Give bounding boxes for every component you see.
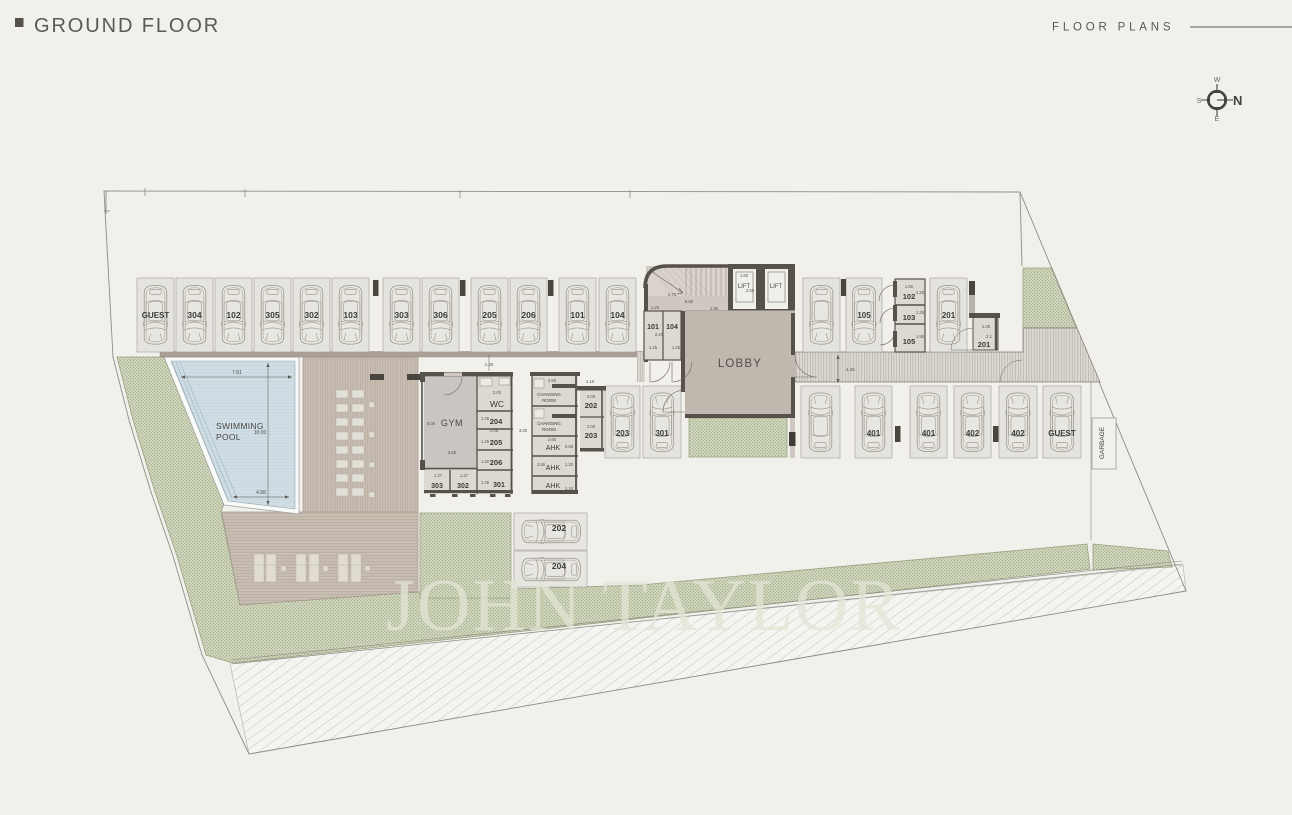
svg-text:LOBBY: LOBBY bbox=[718, 358, 762, 370]
svg-text:203: 203 bbox=[616, 429, 630, 438]
svg-text:AHK: AHK bbox=[546, 465, 561, 472]
svg-text:S: S bbox=[1197, 98, 1202, 105]
svg-text:1.25: 1.25 bbox=[481, 416, 490, 421]
svg-text:1.25: 1.25 bbox=[672, 345, 681, 350]
svg-text:CHANGING: CHANGING bbox=[537, 392, 561, 397]
svg-text:3.30: 3.30 bbox=[519, 428, 528, 433]
svg-text:1.20: 1.20 bbox=[651, 305, 660, 310]
svg-text:103: 103 bbox=[903, 313, 916, 322]
svg-text:AHK: AHK bbox=[546, 483, 561, 490]
svg-text:1.27: 1.27 bbox=[434, 473, 443, 478]
svg-text:LIFT: LIFT bbox=[770, 284, 783, 290]
svg-text:1.25: 1.25 bbox=[649, 345, 658, 350]
svg-text:204: 204 bbox=[490, 417, 503, 426]
svg-text:1.10: 1.10 bbox=[586, 379, 595, 384]
svg-text:302: 302 bbox=[304, 310, 318, 320]
svg-text:401: 401 bbox=[867, 429, 881, 438]
svg-text:GROUND FLOOR: GROUND FLOOR bbox=[34, 15, 220, 37]
svg-text:2.50: 2.50 bbox=[746, 288, 755, 293]
svg-text:1.10: 1.10 bbox=[565, 486, 574, 491]
svg-text:2.70: 2.70 bbox=[668, 292, 677, 297]
svg-text:ROOM: ROOM bbox=[542, 398, 556, 403]
svg-text:JOHN TAYLOR: JOHN TAYLOR bbox=[386, 565, 902, 647]
svg-text:3.55: 3.55 bbox=[537, 462, 546, 467]
svg-text:SWIMMING: SWIMMING bbox=[216, 421, 264, 431]
svg-text:402: 402 bbox=[1011, 429, 1025, 438]
svg-text:1.25: 1.25 bbox=[916, 290, 925, 295]
svg-text:2.60: 2.60 bbox=[548, 437, 557, 442]
svg-text:GYM: GYM bbox=[441, 418, 463, 428]
svg-text:206: 206 bbox=[490, 458, 503, 467]
svg-text:1.20: 1.20 bbox=[481, 459, 490, 464]
svg-text:1.25: 1.25 bbox=[481, 439, 490, 444]
svg-text:7.81: 7.81 bbox=[232, 370, 242, 376]
svg-text:1.25: 1.25 bbox=[485, 362, 494, 367]
svg-text:2.00: 2.00 bbox=[493, 390, 502, 395]
svg-text:POOL: POOL bbox=[216, 432, 241, 442]
svg-text:104: 104 bbox=[666, 324, 678, 331]
svg-text:103: 103 bbox=[343, 310, 357, 320]
svg-text:1.25: 1.25 bbox=[481, 480, 490, 485]
svg-text:202: 202 bbox=[585, 401, 598, 410]
svg-text:GARBAGE: GARBAGE bbox=[1099, 426, 1106, 459]
svg-text:301: 301 bbox=[493, 482, 505, 489]
svg-text:101: 101 bbox=[570, 310, 584, 320]
svg-text:2.20: 2.20 bbox=[655, 332, 664, 337]
svg-text:205: 205 bbox=[482, 310, 496, 320]
svg-text:301: 301 bbox=[655, 429, 669, 438]
svg-text:1.60: 1.60 bbox=[740, 273, 749, 278]
svg-text:305: 305 bbox=[265, 310, 279, 320]
svg-text:101: 101 bbox=[647, 324, 659, 331]
svg-text:102: 102 bbox=[903, 292, 916, 301]
svg-text:WC: WC bbox=[490, 399, 504, 409]
svg-text:201: 201 bbox=[978, 340, 991, 349]
svg-text:1.20: 1.20 bbox=[565, 462, 574, 467]
svg-text:302: 302 bbox=[457, 483, 469, 490]
svg-text:1.60: 1.60 bbox=[905, 284, 914, 289]
svg-text:2.1: 2.1 bbox=[986, 334, 993, 339]
svg-text:GUEST: GUEST bbox=[1048, 429, 1076, 438]
svg-text:FLOOR PLANS: FLOOR PLANS bbox=[1052, 22, 1174, 34]
svg-text:304: 304 bbox=[187, 310, 201, 320]
svg-text:E: E bbox=[1215, 116, 1220, 123]
svg-text:4.88: 4.88 bbox=[256, 490, 266, 496]
svg-text:0.60: 0.60 bbox=[565, 444, 574, 449]
svg-text:306: 306 bbox=[433, 310, 447, 320]
svg-text:1.55: 1.55 bbox=[916, 334, 925, 339]
svg-text:W: W bbox=[1214, 77, 1221, 84]
svg-text:401: 401 bbox=[922, 429, 936, 438]
svg-text:1.27: 1.27 bbox=[460, 473, 469, 478]
svg-text:202: 202 bbox=[552, 523, 566, 533]
svg-text:ROOM: ROOM bbox=[542, 427, 556, 432]
svg-text:203: 203 bbox=[585, 431, 598, 440]
svg-text:AHK: AHK bbox=[546, 445, 561, 452]
svg-text:201: 201 bbox=[942, 311, 956, 320]
svg-text:1.25: 1.25 bbox=[916, 310, 925, 315]
svg-text:303: 303 bbox=[394, 310, 408, 320]
svg-text:303: 303 bbox=[431, 483, 443, 490]
svg-text:104: 104 bbox=[610, 310, 624, 320]
svg-text:CHANGING: CHANGING bbox=[537, 421, 561, 426]
svg-text:2.00: 2.00 bbox=[587, 424, 596, 429]
svg-text:GUEST: GUEST bbox=[142, 311, 170, 320]
svg-text:2.60: 2.60 bbox=[548, 378, 557, 383]
svg-text:2.00: 2.00 bbox=[587, 394, 596, 399]
svg-text:105: 105 bbox=[857, 311, 871, 320]
svg-text:1.25: 1.25 bbox=[846, 367, 855, 372]
svg-text:6.00: 6.00 bbox=[427, 421, 436, 426]
svg-text:1.95: 1.95 bbox=[710, 306, 719, 311]
svg-text:N: N bbox=[1233, 93, 1242, 108]
svg-text:2.06: 2.06 bbox=[490, 428, 499, 433]
svg-text:102: 102 bbox=[226, 310, 240, 320]
svg-text:5.50: 5.50 bbox=[685, 299, 694, 304]
svg-text:3.65: 3.65 bbox=[448, 450, 457, 455]
svg-text:1.25: 1.25 bbox=[982, 324, 991, 329]
svg-text:402: 402 bbox=[966, 429, 980, 438]
svg-text:105: 105 bbox=[903, 337, 916, 346]
svg-text:205: 205 bbox=[490, 438, 503, 447]
svg-text:206: 206 bbox=[521, 310, 535, 320]
